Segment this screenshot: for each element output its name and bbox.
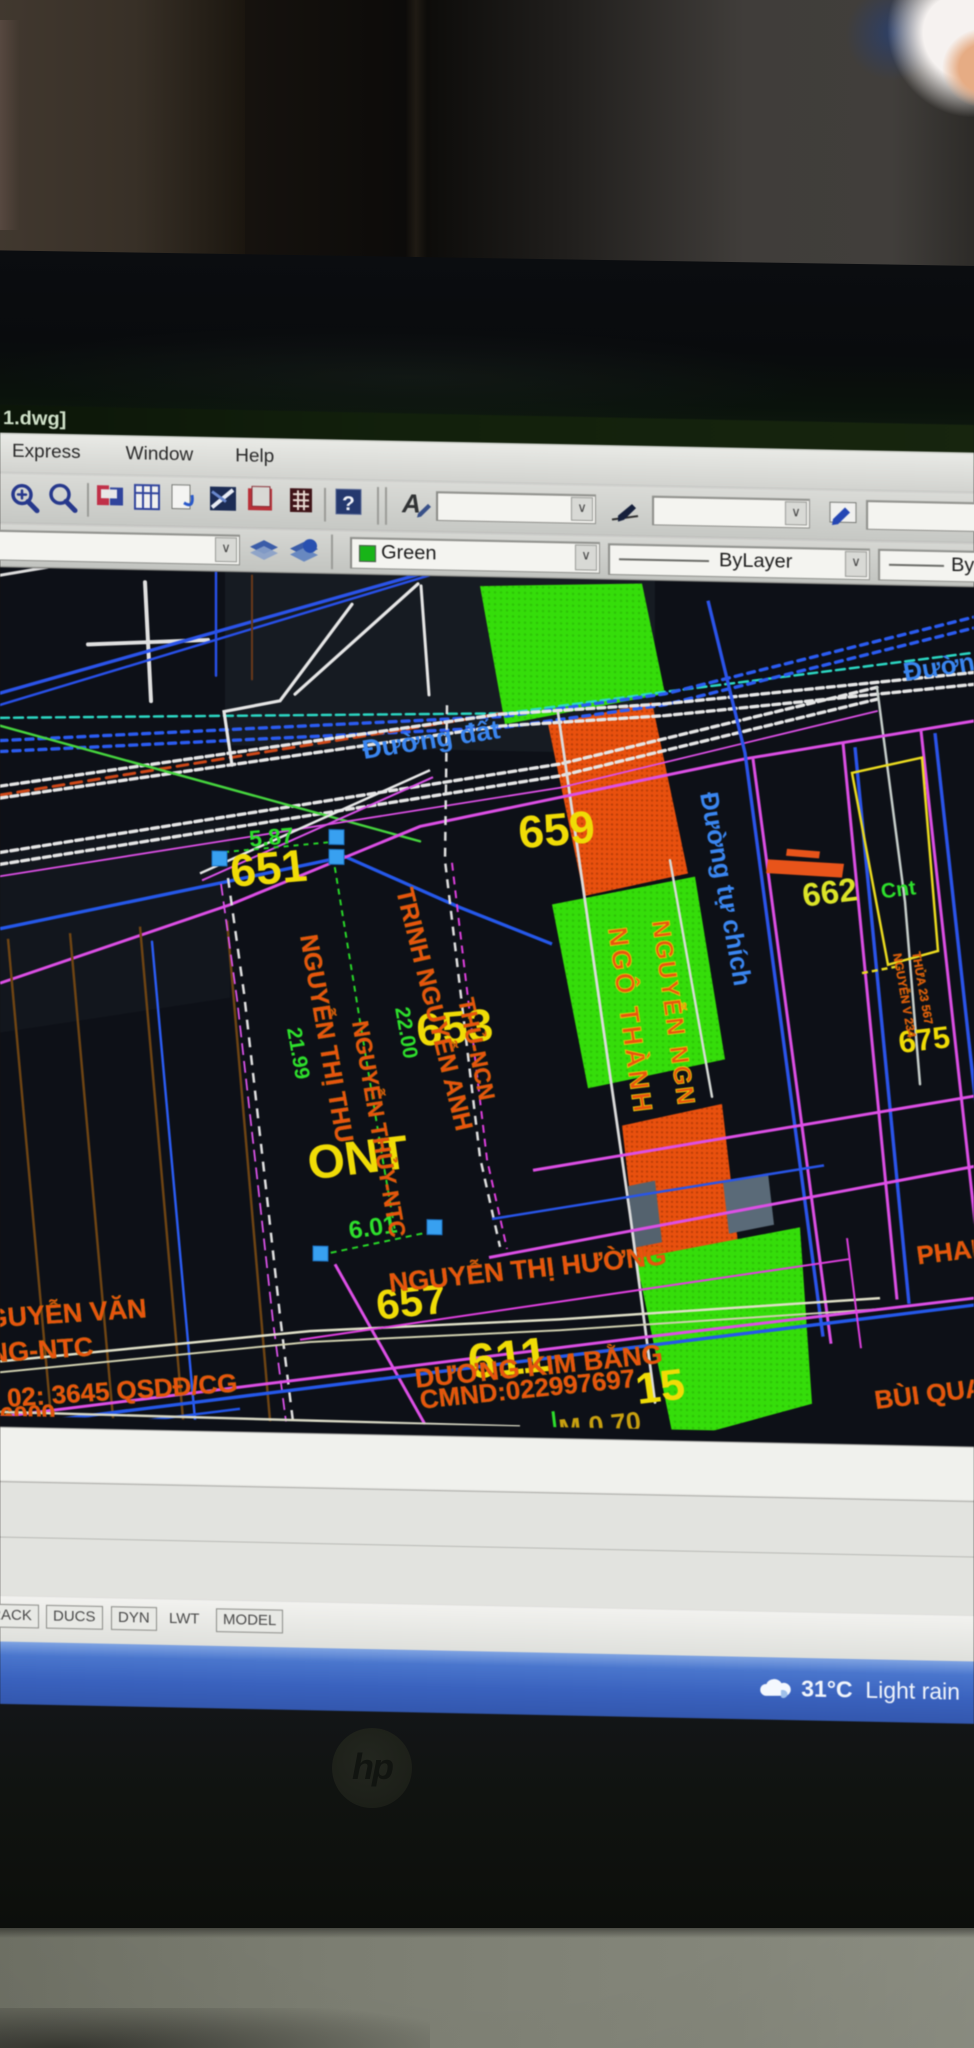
svg-text:NGUYỄN THỊ HƯỜNG: NGUYỄN THỊ HƯỜNG bbox=[387, 1239, 668, 1298]
svg-text:PHAN: PHAN bbox=[915, 1234, 974, 1270]
svg-text:21.99: 21.99 bbox=[282, 1026, 314, 1081]
svg-text:Đườn: Đườn bbox=[901, 648, 974, 686]
svg-text:BÙI QUA: BÙI QUA bbox=[873, 1372, 974, 1415]
svg-text:M 0.70: M 0.70 bbox=[557, 1406, 643, 1436]
svg-text:?: ? bbox=[342, 492, 355, 515]
svg-text:Cnt: Cnt bbox=[879, 876, 917, 903]
svg-text:662: 662 bbox=[800, 870, 860, 913]
svg-text:5.87: 5.87 bbox=[248, 822, 295, 851]
svg-text:NGUYỄN VĂN: NGUYỄN VĂN bbox=[0, 1292, 148, 1335]
svg-text:659: 659 bbox=[516, 801, 598, 858]
